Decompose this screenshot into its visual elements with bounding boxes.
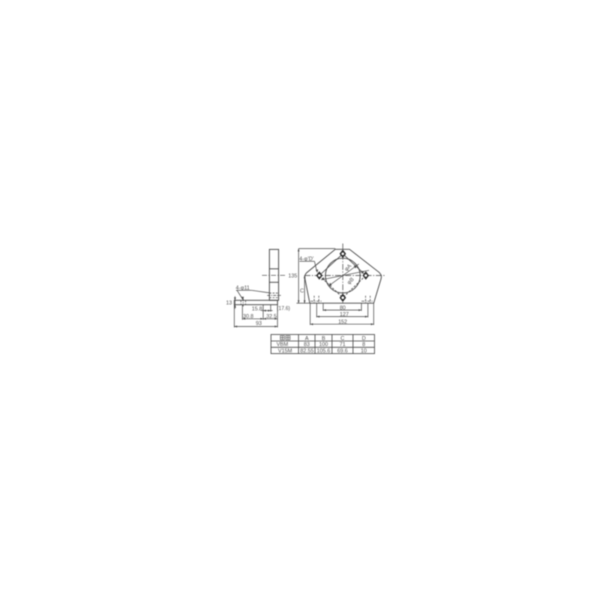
svg-text:φB: φB: [346, 276, 356, 286]
svg-text:13: 13: [226, 300, 232, 306]
svg-text:V15M: V15M: [278, 349, 293, 355]
svg-text:69.6: 69.6: [337, 349, 348, 355]
svg-text:(17.6): (17.6): [277, 306, 291, 312]
svg-text:127: 127: [340, 312, 349, 318]
svg-text:30.8: 30.8: [243, 314, 254, 320]
svg-text:100: 100: [319, 342, 328, 348]
svg-text:A: A: [305, 336, 309, 342]
svg-text:32.5: 32.5: [266, 314, 277, 320]
svg-text:B: B: [322, 336, 326, 342]
svg-text:10: 10: [361, 349, 367, 355]
svg-text:80: 80: [340, 305, 346, 311]
svg-text:83: 83: [304, 342, 310, 348]
svg-text:4-φ11: 4-φ11: [236, 286, 250, 292]
svg-text:152: 152: [338, 319, 347, 325]
svg-text:135: 135: [288, 274, 297, 280]
svg-text:4-φ’D’: 4-φ’D’: [299, 257, 314, 263]
svg-text:φA: φA: [344, 263, 354, 273]
svg-text:15.8: 15.8: [252, 306, 262, 312]
svg-text:C: C: [300, 289, 304, 295]
svg-text:D: D: [362, 336, 366, 342]
svg-text:C: C: [341, 336, 345, 342]
svg-text:8: 8: [362, 342, 365, 348]
svg-text:105.6: 105.6: [317, 349, 331, 355]
svg-text:71: 71: [340, 342, 346, 348]
svg-text:93: 93: [256, 321, 262, 327]
svg-text:82.55: 82.55: [300, 349, 314, 355]
svg-text:VBM: VBM: [276, 342, 288, 348]
